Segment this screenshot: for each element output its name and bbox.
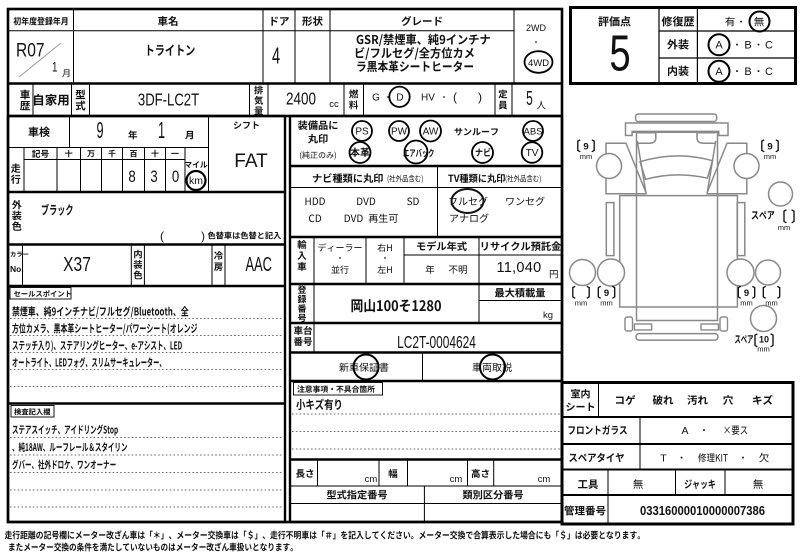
svg-text:5: 5 bbox=[609, 24, 630, 82]
svg-text:cc: cc bbox=[329, 99, 339, 110]
svg-text:cm: cm bbox=[450, 474, 463, 485]
svg-text:3: 3 bbox=[150, 168, 157, 187]
svg-text:2WD: 2WD bbox=[526, 23, 547, 33]
svg-text:11,040: 11,040 bbox=[496, 260, 541, 276]
svg-text:8: 8 bbox=[128, 168, 135, 187]
svg-text:G: G bbox=[372, 93, 380, 104]
svg-text:FAT: FAT bbox=[234, 151, 268, 172]
svg-text:A: A bbox=[715, 66, 723, 78]
svg-text:1: 1 bbox=[52, 59, 58, 75]
svg-text:X37: X37 bbox=[63, 253, 91, 275]
svg-text:5: 5 bbox=[526, 88, 533, 110]
svg-text:mm: mm bbox=[757, 345, 770, 354]
svg-text:1: 1 bbox=[158, 117, 165, 143]
svg-text:10: 10 bbox=[759, 335, 769, 345]
svg-text:No.: No. bbox=[10, 264, 24, 274]
svg-text:mm: mm bbox=[765, 298, 778, 307]
svg-text:): ) bbox=[478, 90, 482, 104]
svg-text:4: 4 bbox=[272, 43, 280, 69]
svg-text:(: ( bbox=[453, 90, 457, 104]
svg-text:mm: mm bbox=[575, 298, 588, 307]
svg-text:LC2T-0004624: LC2T-0004624 bbox=[397, 333, 476, 353]
svg-text:B: B bbox=[744, 40, 751, 52]
svg-text:C: C bbox=[765, 40, 773, 52]
svg-text:cm: cm bbox=[365, 474, 378, 485]
svg-text:C: C bbox=[765, 66, 773, 78]
svg-text:3DF-LC2T: 3DF-LC2T bbox=[138, 91, 200, 110]
svg-text:mm: mm bbox=[764, 152, 777, 161]
svg-text:mm: mm bbox=[740, 298, 753, 307]
svg-text:AW: AW bbox=[423, 127, 439, 138]
svg-text:0: 0 bbox=[172, 168, 179, 187]
svg-text:A: A bbox=[715, 40, 723, 52]
svg-text:T: T bbox=[660, 453, 667, 465]
svg-text:4WD: 4WD bbox=[528, 58, 549, 69]
svg-text:mm: mm bbox=[600, 298, 613, 307]
svg-text:AAC: AAC bbox=[246, 253, 272, 276]
svg-text:03316000010000007386: 03316000010000007386 bbox=[640, 503, 765, 518]
svg-text:mm: mm bbox=[778, 223, 791, 232]
svg-text:ABS: ABS bbox=[523, 127, 542, 138]
svg-text:): ) bbox=[201, 229, 205, 243]
svg-text:(: ( bbox=[160, 229, 164, 243]
svg-text:PW: PW bbox=[391, 127, 408, 138]
svg-text:km: km bbox=[189, 175, 203, 187]
svg-text:B: B bbox=[744, 66, 751, 78]
svg-text:A: A bbox=[681, 425, 688, 437]
svg-text:cm: cm bbox=[538, 474, 551, 485]
svg-text:HV: HV bbox=[421, 93, 435, 104]
svg-text:TV: TV bbox=[526, 148, 539, 159]
svg-text:R07: R07 bbox=[16, 39, 45, 61]
svg-text:PS: PS bbox=[355, 127, 369, 138]
svg-text:9: 9 bbox=[96, 117, 103, 143]
svg-text:mm: mm bbox=[580, 152, 593, 161]
svg-text:D: D bbox=[396, 93, 403, 104]
svg-text:kg: kg bbox=[543, 310, 553, 321]
svg-text:2400: 2400 bbox=[286, 90, 316, 109]
